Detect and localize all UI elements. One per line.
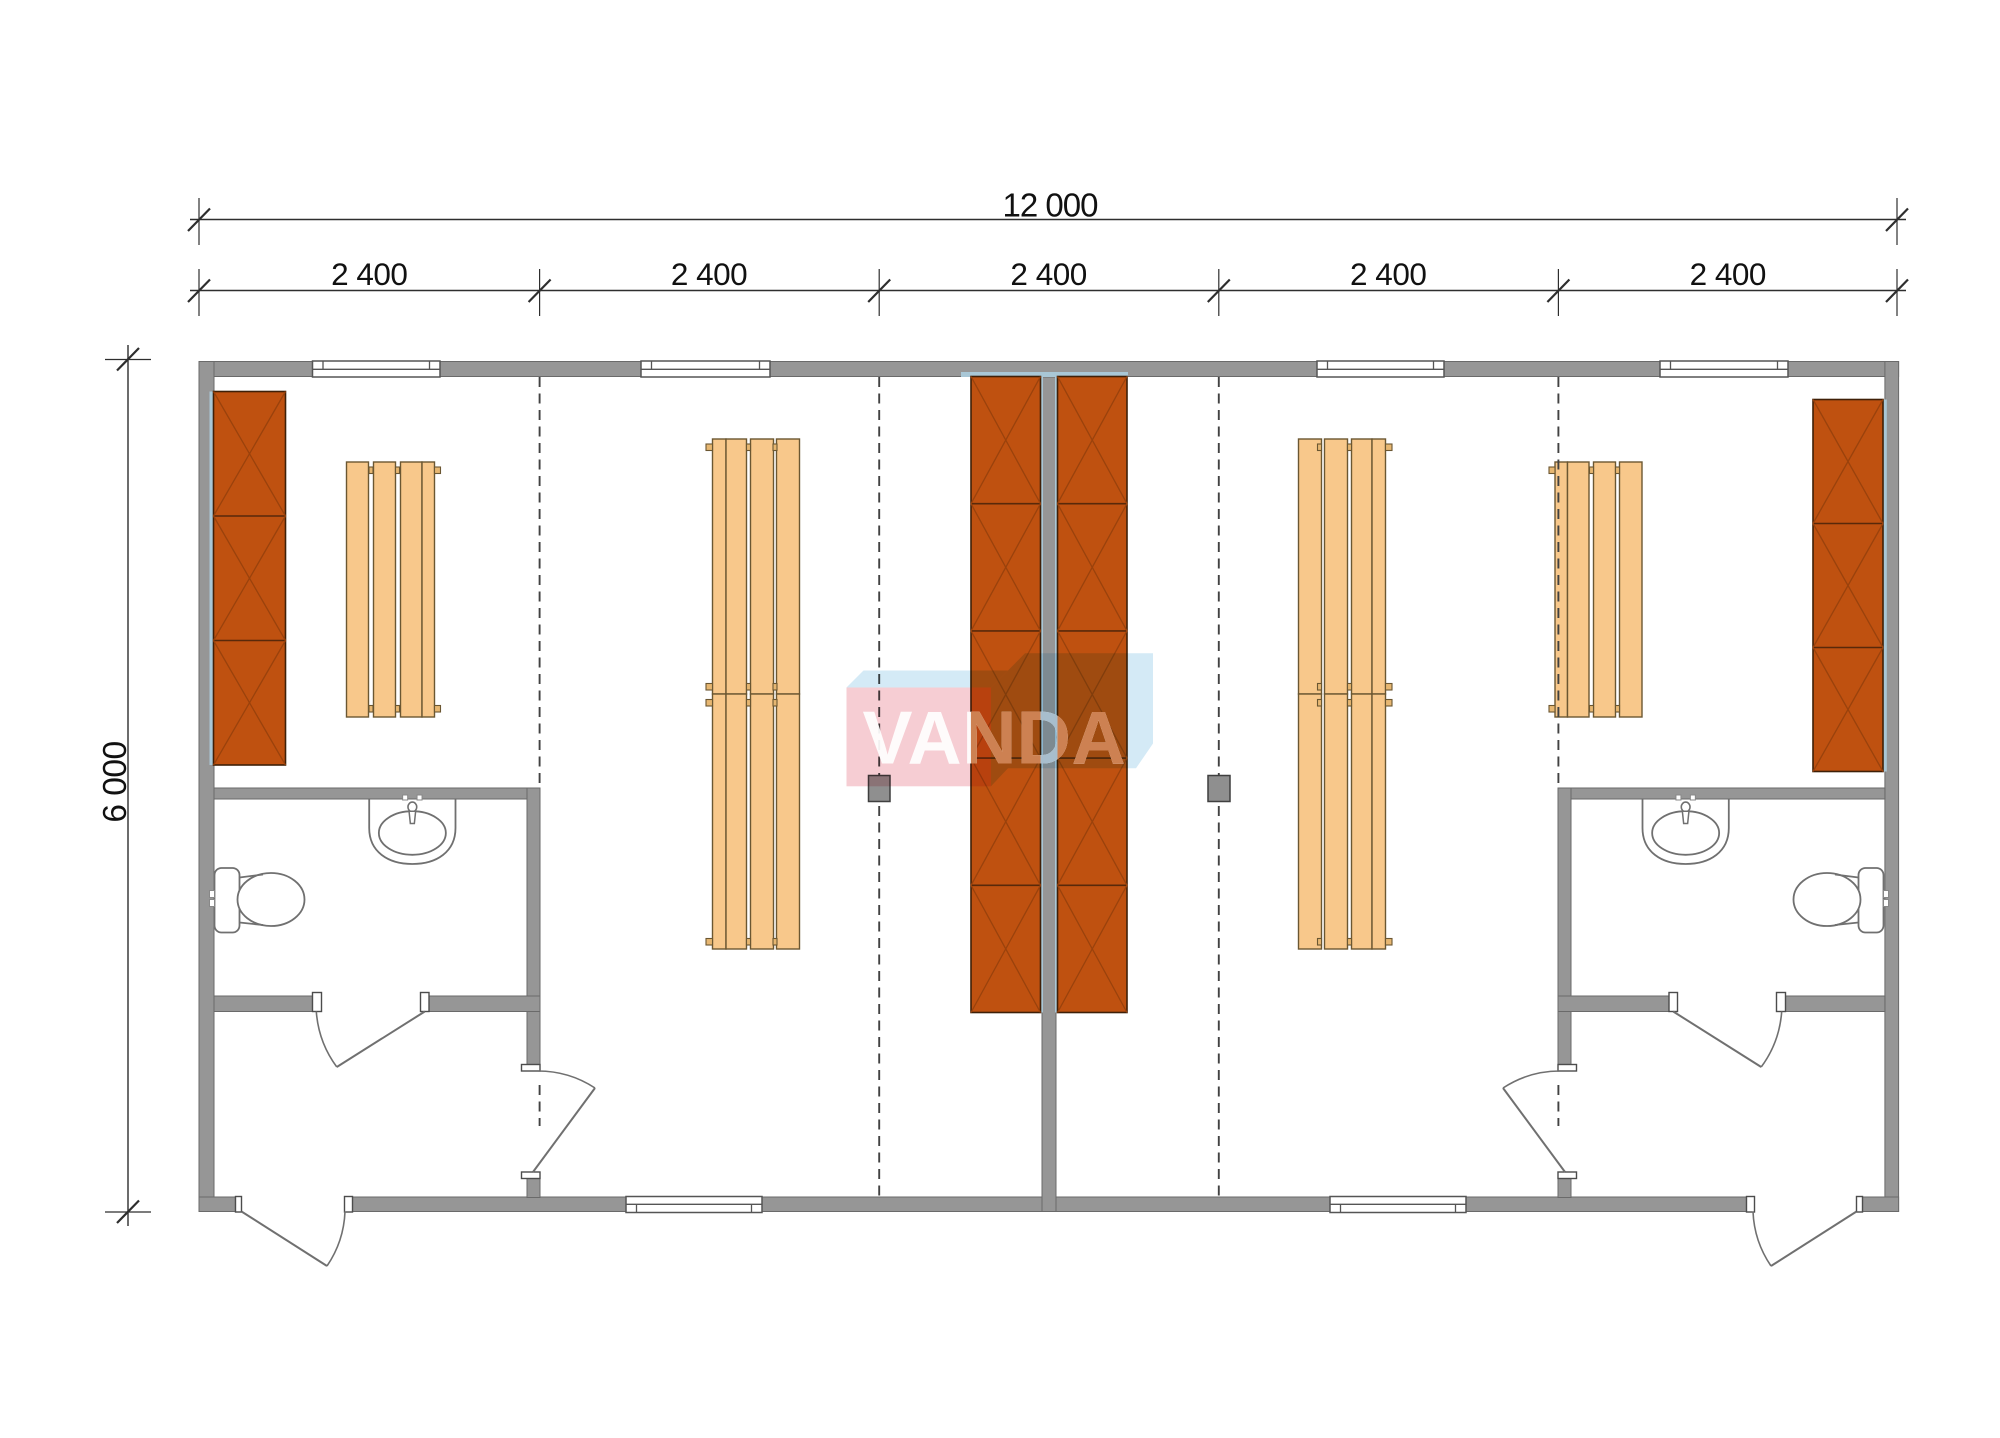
svg-text:2 400: 2 400 bbox=[1690, 256, 1766, 292]
svg-text:2 400: 2 400 bbox=[1350, 256, 1426, 292]
svg-text:12 000: 12 000 bbox=[1003, 187, 1099, 224]
svg-text:2 400: 2 400 bbox=[671, 256, 747, 292]
svg-text:2 400: 2 400 bbox=[331, 256, 407, 292]
svg-text:6 000: 6 000 bbox=[97, 741, 134, 822]
svg-text:2 400: 2 400 bbox=[1010, 256, 1086, 292]
